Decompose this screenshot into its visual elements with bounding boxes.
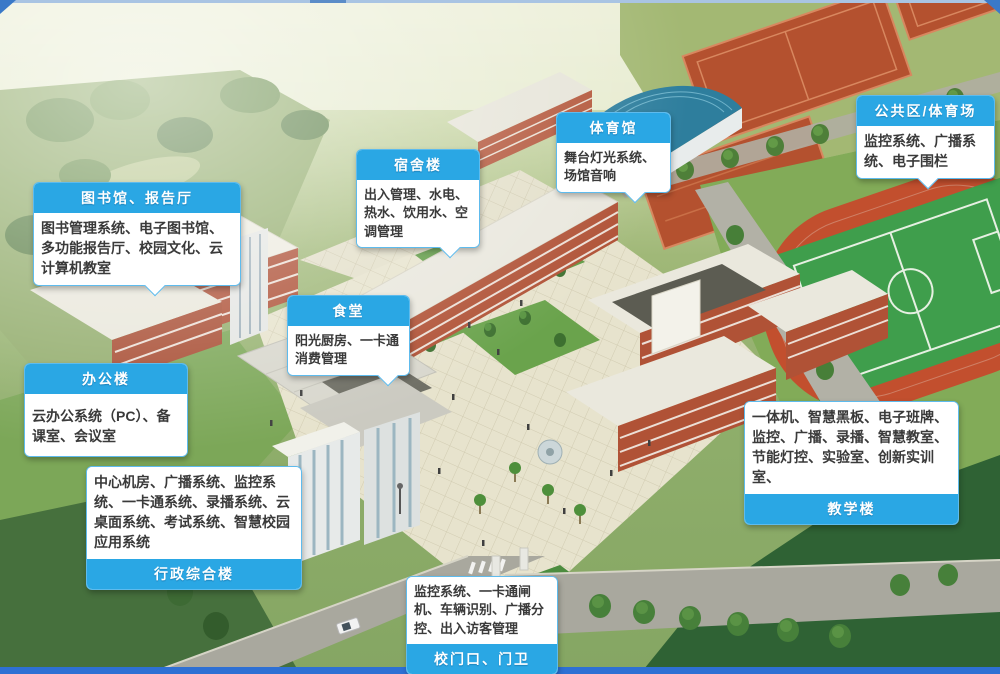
- callout-gymnasium: 体育馆 舞台灯光系统、场馆音响: [556, 112, 671, 193]
- callout-admin-complex: 中心机房、广播系统、监控系统、一卡通系统、录播系统、云桌面系统、考试系统、智慧校…: [86, 466, 302, 590]
- callout-office: 办公楼 云办公系统（PC）、备课室、会议室: [24, 363, 188, 457]
- campus-map-diagram: 图书馆、报告厅 图书管理系统、电子图书馆、多功能报告厅、校园文化、云计算机教室 …: [0, 0, 1000, 674]
- callout-gymnasium-body: 舞台灯光系统、场馆音响: [557, 143, 670, 192]
- callout-teaching-body: 一体机、智慧黑板、电子班牌、监控、广播、录播、智慧教室、节能灯控、实验室、创新实…: [745, 402, 958, 494]
- callout-library-hall: 图书馆、报告厅 图书管理系统、电子图书馆、多功能报告厅、校园文化、云计算机教室: [33, 182, 241, 286]
- top-line: [0, 0, 1000, 3]
- callout-office-title: 办公楼: [25, 364, 187, 394]
- callout-teaching-title: 教学楼: [745, 494, 958, 524]
- callout-canteen-body: 阳光厨房、一卡通消费管理: [288, 326, 409, 375]
- callout-canteen-title: 食堂: [288, 296, 409, 326]
- callout-teaching: 一体机、智慧黑板、电子班牌、监控、广播、录播、智慧教室、节能灯控、实验室、创新实…: [744, 401, 959, 525]
- callout-gate-guard-body: 监控系统、一卡通闸机、车辆识别、广播分控、出入访客管理: [407, 577, 557, 644]
- callout-dormitory-body: 出入管理、水电、热水、饮用水、空调管理: [357, 180, 479, 247]
- callout-public-stadium: 公共区/体育场 监控系统、广播系统、电子围栏: [856, 95, 995, 179]
- callout-library-hall-title: 图书馆、报告厅: [34, 183, 240, 213]
- callout-canteen: 食堂 阳光厨房、一卡通消费管理: [287, 295, 410, 376]
- callout-public-stadium-body: 监控系统、广播系统、电子围栏: [857, 126, 994, 178]
- callout-dormitory: 宿舍楼 出入管理、水电、热水、饮用水、空调管理: [356, 149, 480, 248]
- callout-dormitory-title: 宿舍楼: [357, 150, 479, 180]
- callout-gymnasium-title: 体育馆: [557, 113, 670, 143]
- callout-gate-guard-title: 校门口、门卫: [407, 644, 557, 674]
- callout-library-hall-body: 图书管理系统、电子图书馆、多功能报告厅、校园文化、云计算机教室: [34, 213, 240, 285]
- callout-admin-complex-body: 中心机房、广播系统、监控系统、一卡通系统、录播系统、云桌面系统、考试系统、智慧校…: [87, 467, 301, 559]
- callout-public-stadium-title: 公共区/体育场: [857, 96, 994, 126]
- callout-admin-complex-title: 行政综合楼: [87, 559, 301, 589]
- callout-gate-guard: 监控系统、一卡通闸机、车辆识别、广播分控、出入访客管理 校门口、门卫: [406, 576, 558, 674]
- callout-office-body: 云办公系统（PC）、备课室、会议室: [25, 394, 187, 456]
